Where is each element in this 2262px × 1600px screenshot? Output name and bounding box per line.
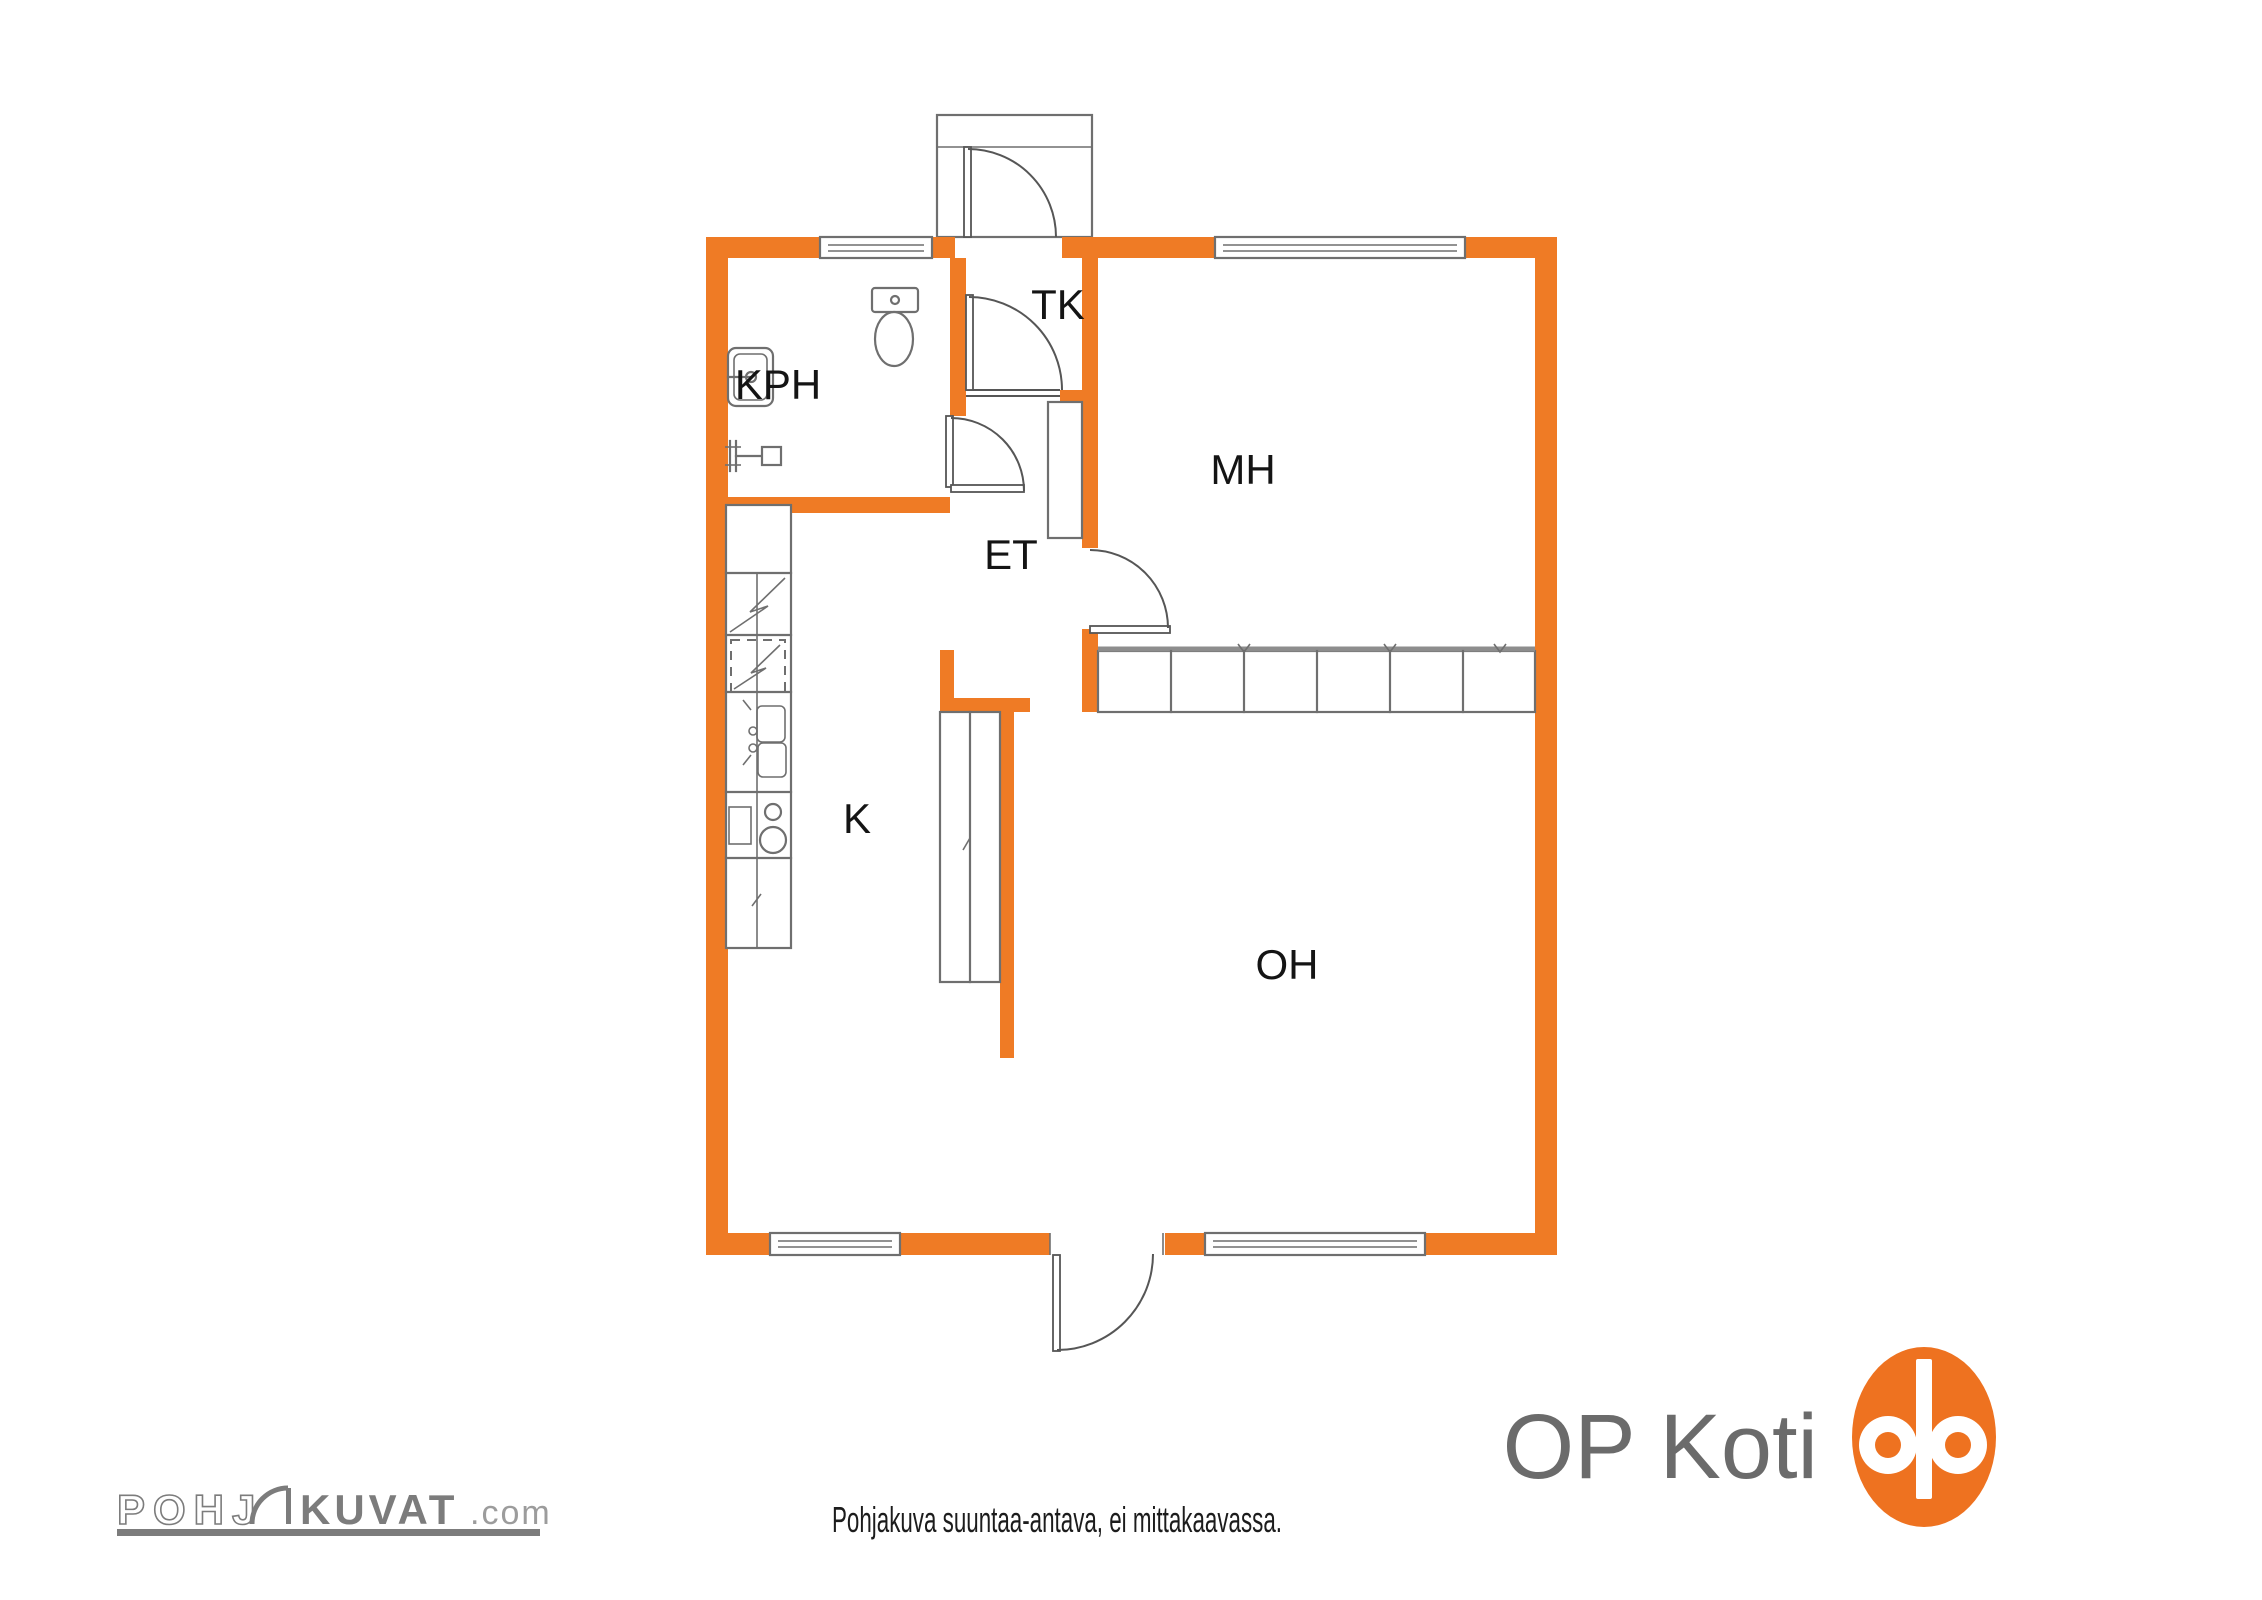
- op-logo-icon: [1852, 1347, 1996, 1527]
- kph-door: [946, 416, 1024, 492]
- shower-valve-icon: [725, 441, 781, 471]
- closet-row: [1098, 644, 1535, 712]
- hall-wardrobe: [1048, 402, 1082, 538]
- op-koti-logo: OP Koti: [1503, 1347, 1996, 1527]
- tall-cabinet: [940, 712, 1000, 982]
- toilet-icon: [872, 288, 918, 366]
- mh-door: [1090, 550, 1170, 633]
- pohjakuvat-main: KUVAT: [300, 1486, 458, 1533]
- upper-cabinet: [726, 505, 791, 948]
- outer-walls: [706, 237, 1557, 1255]
- pohjakuvat-prefix: POHJ: [117, 1486, 263, 1533]
- balcony-door: [1050, 1233, 1163, 1351]
- mh-window: [1215, 237, 1465, 258]
- room-label-oh: OH: [1256, 941, 1319, 988]
- room-label-tk: TK: [1031, 281, 1085, 328]
- kitchen-counter: [726, 505, 791, 948]
- op-koti-text: OP Koti: [1503, 1396, 1818, 1498]
- room-label-kph: KPH: [735, 361, 821, 408]
- kph-window: [820, 237, 932, 258]
- oh-window: [1205, 1233, 1425, 1255]
- room-label-mh: MH: [1210, 446, 1275, 493]
- pohjakuvat-suffix: .com: [470, 1494, 552, 1532]
- floor-plan-page: KPH TK ET MH K OH Pohjakuva suuntaa-anta…: [0, 0, 2262, 1600]
- pohjakuvat-logo: POHJ KUVAT .com: [117, 1486, 552, 1536]
- floor-plan-drawing: KPH TK ET MH K OH Pohjakuva suuntaa-anta…: [0, 0, 2262, 1600]
- room-label-k: K: [843, 795, 871, 842]
- room-label-et: ET: [984, 531, 1038, 578]
- entrance-vestibule: [937, 115, 1092, 237]
- disclaimer-text: Pohjakuva suuntaa-antava, ei mittakaavas…: [832, 1499, 1282, 1540]
- kitchen-window: [770, 1233, 900, 1255]
- pohjakuvat-underline: [117, 1529, 540, 1536]
